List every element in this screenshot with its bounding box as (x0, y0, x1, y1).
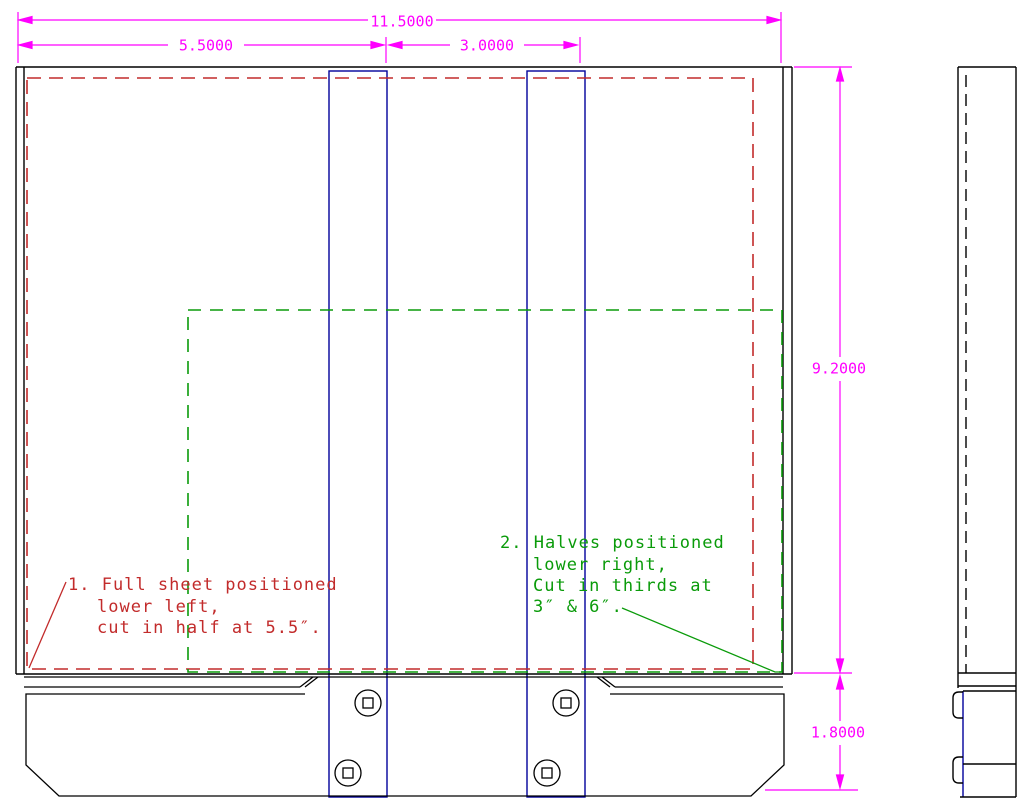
knob-square-3 (343, 768, 353, 778)
knob-circle-1 (355, 690, 381, 716)
note1-line-0: 1. Full sheet positioned (68, 575, 338, 595)
support-rail (24, 677, 783, 687)
note2-line-2: Cut in thirds at (533, 576, 713, 596)
knob-circle-2 (553, 690, 579, 716)
arrow-height-top (837, 68, 844, 81)
dim-label-total-width: 11.5000 (370, 14, 433, 31)
base-plate-outline (26, 694, 784, 796)
note2-line-0: 2. Halves positioned (500, 533, 725, 553)
note2-line-1: lower right, (533, 555, 668, 575)
arrow-height-bottom (837, 659, 844, 672)
knob-square-4 (542, 768, 552, 778)
arrow-base-top (837, 676, 844, 689)
note1-line-2: cut in half at 5.5″. (97, 618, 322, 638)
blue-cut-guides (329, 71, 963, 797)
note2-line-3: 3″ & 6″. (533, 597, 623, 617)
dim-label-third-width: 3.0000 (460, 38, 514, 55)
note1-leader-line (29, 582, 66, 668)
cut-guide-strip-right (527, 71, 585, 797)
arrow-third-left (389, 42, 402, 49)
arrow-half-right (371, 42, 384, 49)
arrow-total-right (767, 17, 780, 24)
dim-label-base-height: 1.8000 (811, 725, 865, 742)
knob-circle-3 (335, 760, 361, 786)
knob-square-1 (363, 698, 373, 708)
cad-drawing-canvas: 11.5000 5.5000 3.0000 9.2000 1.8000 1. F… (0, 0, 1032, 808)
arrow-half-left (19, 42, 32, 49)
base-plate-front-view (26, 690, 784, 796)
arrow-total-left (19, 17, 32, 24)
cut-guide-strip-left (329, 71, 387, 797)
dim-label-half-width: 5.5000 (179, 38, 233, 55)
note2-leader-line (622, 608, 782, 672)
note1-line-1: lower left, (97, 597, 221, 617)
arrow-base-bottom (837, 775, 844, 788)
drawing-linework (0, 0, 1032, 808)
side-knob-bump-1 (953, 692, 963, 718)
dim-label-panel-height: 9.2000 (812, 361, 866, 378)
side-knob-bump-2 (953, 757, 963, 783)
arrow-third-right (564, 42, 577, 49)
knob-circle-4 (534, 760, 560, 786)
knob-square-2 (561, 698, 571, 708)
side-view (953, 67, 1016, 797)
